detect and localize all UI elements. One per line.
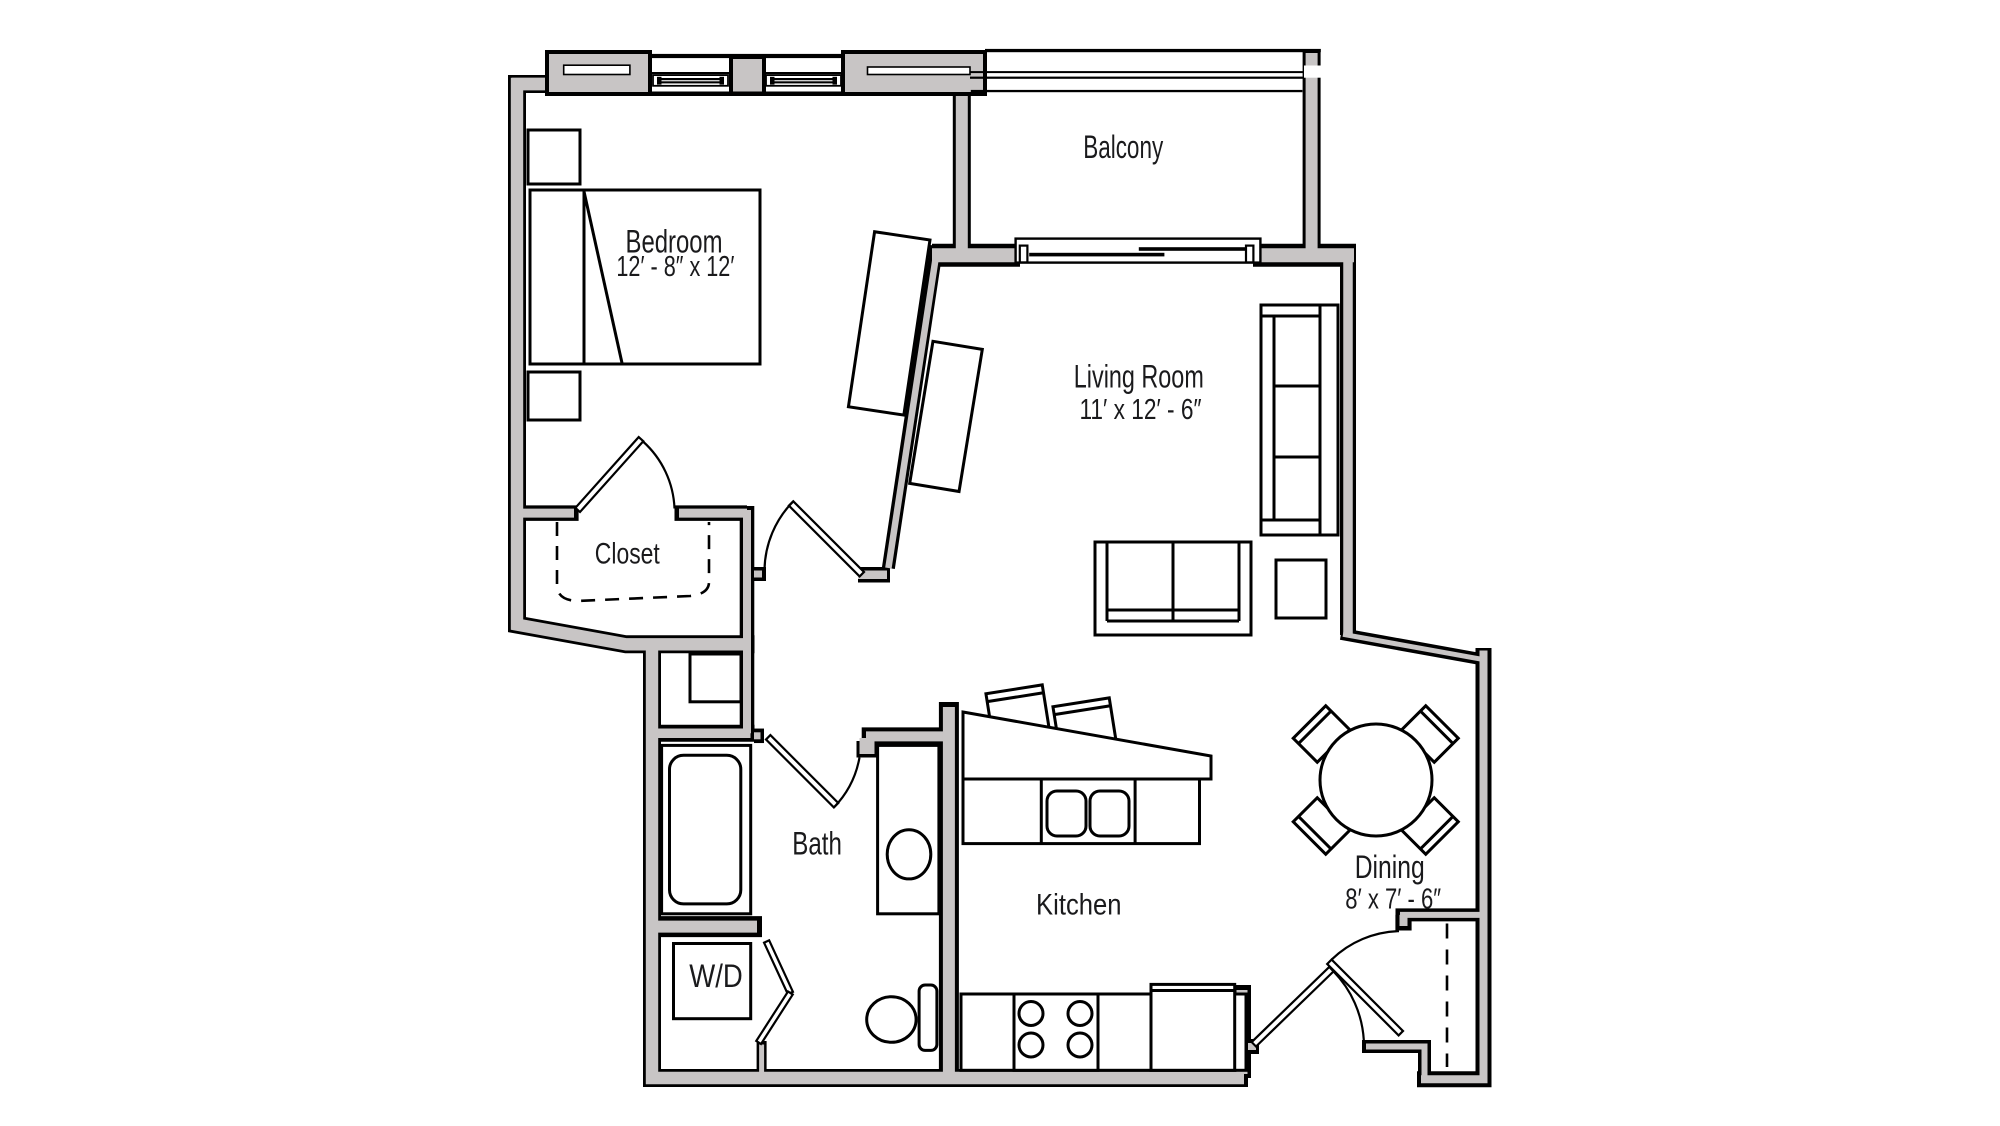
svg-text:11′ x 12′ - 6″: 11′ x 12′ - 6″ xyxy=(1080,394,1202,426)
svg-text:8′ x 7′ - 6″: 8′ x 7′ - 6″ xyxy=(1345,883,1441,915)
svg-text:Kitchen: Kitchen xyxy=(1036,889,1122,922)
svg-text:Balcony: Balcony xyxy=(1083,129,1163,165)
svg-text:Living Room: Living Room xyxy=(1074,358,1204,394)
svg-text:Bath: Bath xyxy=(792,826,842,862)
svg-text:12′ - 8″ x 12′: 12′ - 8″ x 12′ xyxy=(616,251,734,283)
svg-text:Dining: Dining xyxy=(1355,849,1425,885)
svg-text:W/D: W/D xyxy=(689,958,743,994)
svg-text:Closet: Closet xyxy=(595,538,660,571)
